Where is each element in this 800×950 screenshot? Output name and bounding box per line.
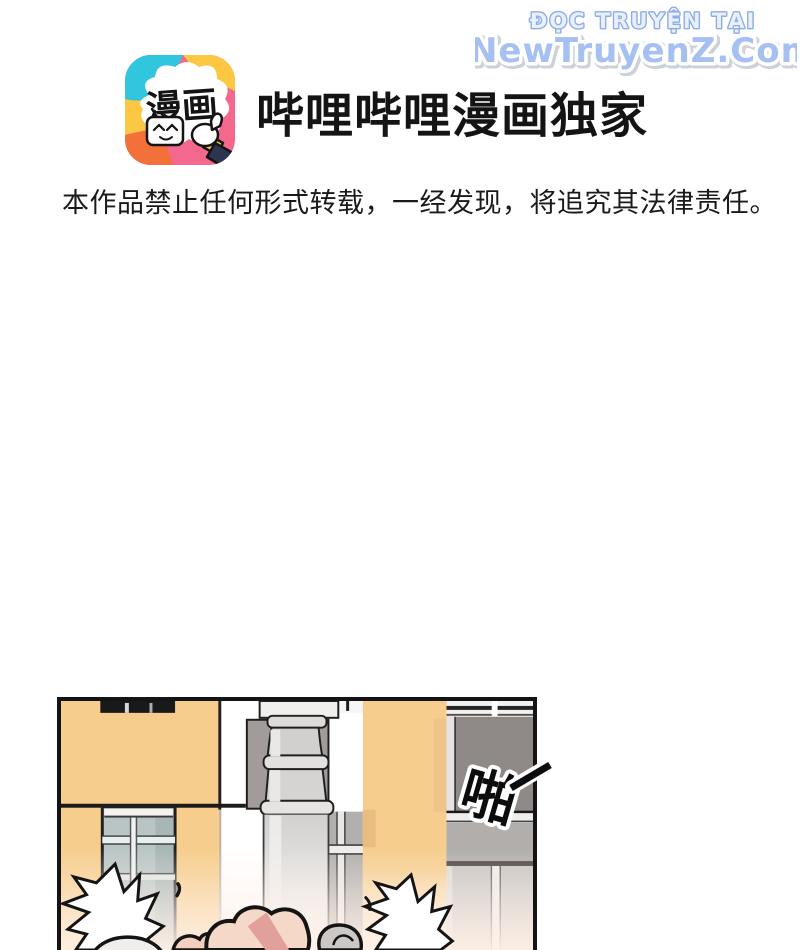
head-ear	[319, 925, 361, 950]
comic-panel	[57, 697, 537, 950]
logo-background: 漫画	[125, 55, 235, 165]
watermark-line2: NewTruyenZ.Com	[475, 31, 797, 71]
copyright-notice: 本作品禁止任何形式转载，一经发现，将追究其法律责任。	[62, 181, 762, 220]
site-watermark: ĐỌC TRUYỆN TẠI NewTruyenZ.Com NewTruyenZ…	[475, 2, 797, 78]
comic-panel-art	[61, 701, 533, 950]
page-title: 哔哩哔哩漫画独家	[256, 76, 736, 146]
watermark-line1: ĐỌC TRUYỆN TẠI	[530, 7, 757, 33]
bilibili-manga-logo: 漫画	[125, 55, 235, 165]
